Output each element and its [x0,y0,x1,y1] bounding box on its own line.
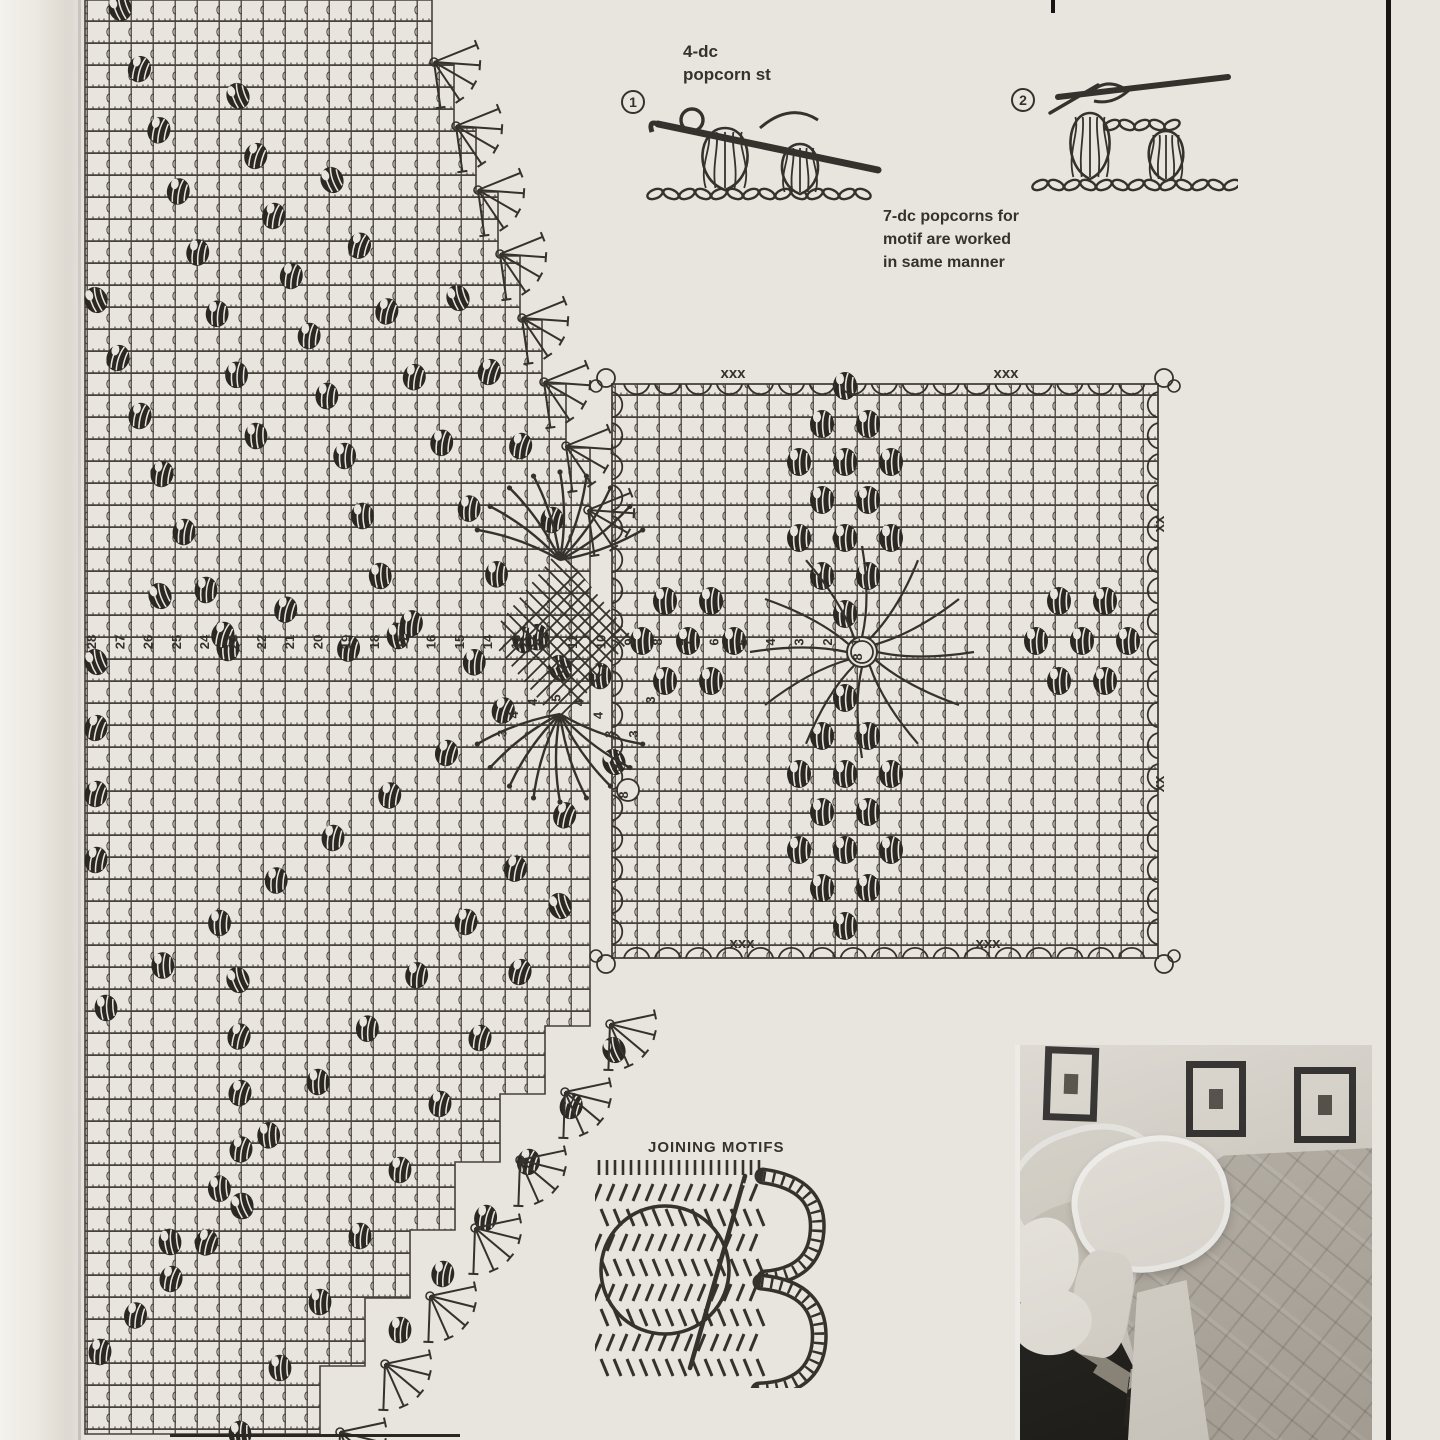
bottom-edge-line [170,1434,460,1437]
spoke-count: 3 [626,730,641,737]
row-number: 27 [112,635,127,649]
scanned-pattern-page: 2827262524232221201918171615141312111098… [0,0,1440,1440]
frame-artwork [1209,1089,1223,1109]
row-number: 5 [735,638,750,645]
row-number: 20 [310,635,325,649]
popcorn-step1-illustration [640,72,890,222]
row-number: 14 [480,634,495,649]
joining-motifs-title: JOINING MOTIFS [648,1139,785,1156]
fan-stitch-count: 4 [591,711,606,719]
column-rule-line [1386,0,1391,1440]
row-number: 21 [282,635,297,649]
row-number: 25 [169,635,184,649]
row-number: 28 [84,635,99,649]
row-number: 8 [650,638,665,645]
frame-artwork [1318,1095,1332,1115]
edge-picot-marks: xx [1151,775,1168,792]
row-number: 3 [792,638,807,645]
row-number: 19 [339,635,354,649]
fan-stitch-count: 3 [494,730,509,737]
row-number: 17 [395,635,410,649]
popcorn-note-text: 7-dc popcorns for motif are worked in sa… [883,205,1019,274]
spoke-count: 3 [643,696,658,703]
fan-stitch-count: 4 [506,710,521,718]
row-number: 6 [707,638,722,645]
motif-center-label: 8 [850,653,865,660]
row-number: 26 [141,635,156,649]
row-number: 7 [678,638,693,645]
row-number: 10 [593,635,608,649]
row-number: 4 [763,638,778,646]
wall-picture-frame [1294,1067,1356,1143]
frame-artwork [1064,1074,1079,1094]
row-number: 12 [537,635,552,649]
bedspread-photo [1015,1045,1372,1440]
edge-picot-marks: xx [1151,515,1168,532]
corner-picot-marks: xxx [720,365,746,382]
corner-picot-marks: xxx [729,935,755,952]
fan-stitch-count: 4 [572,698,587,706]
row-number: 9 [622,638,637,645]
row-number: 13 [509,635,524,649]
spoke-count: 3 [609,764,624,771]
top-crop-mark [1051,0,1055,13]
row-number: 16 [424,635,439,649]
fan-stitch-count: 3 [602,731,617,738]
wall-picture-frame [1043,1046,1100,1122]
fan-base-label: 8 [616,791,631,798]
corner-picot-marks: xxx [975,935,1001,952]
corner-picot-marks: xxx [993,365,1019,382]
row-number: 18 [367,635,382,649]
row-number: 11 [565,635,580,649]
row-number: 15 [452,635,467,649]
fan-stitch-count: 5 [548,694,563,701]
fan-stitch-count: 4 [525,698,540,706]
row-number: 24 [197,634,212,649]
row-number: 22 [254,635,269,649]
row-number: 23 [226,635,241,649]
popcorn-step2-illustration [1028,55,1238,210]
joining-motifs-illustration [595,1158,840,1388]
row-number: 2 [820,638,835,645]
wall-picture-frame [1186,1061,1246,1137]
